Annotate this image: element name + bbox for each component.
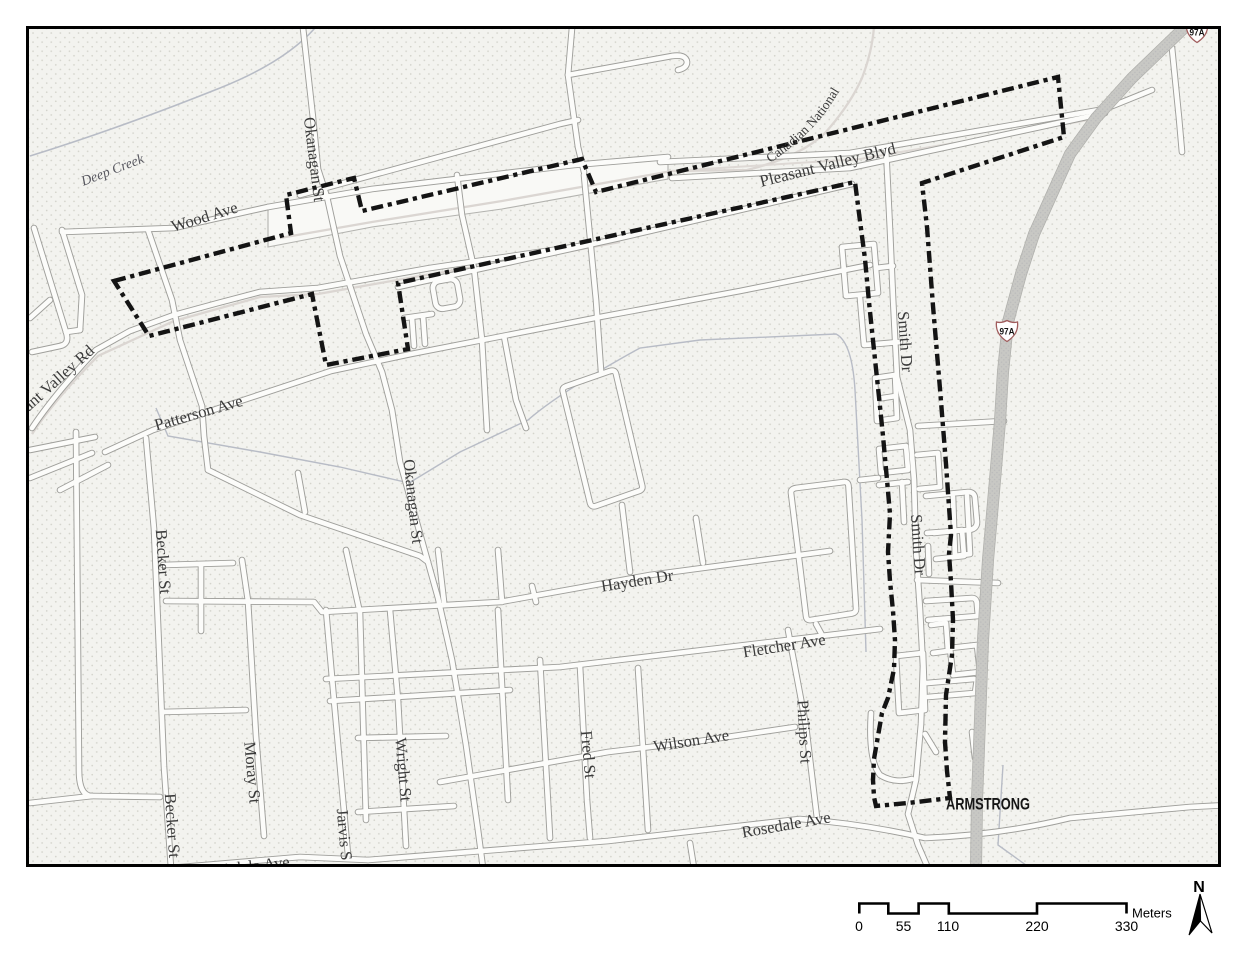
svg-text:97A: 97A — [1000, 326, 1015, 337]
svg-text:ARMSTRONG: ARMSTRONG — [946, 795, 1030, 814]
svg-text:0: 0 — [855, 918, 863, 934]
svg-text:110: 110 — [937, 918, 960, 934]
svg-text:55: 55 — [896, 918, 912, 934]
svg-text:Philips St: Philips St — [793, 699, 815, 764]
svg-text:220: 220 — [1025, 918, 1049, 934]
svg-text:Meters: Meters — [1132, 906, 1172, 921]
svg-text:N: N — [1193, 879, 1205, 896]
svg-text:97A: 97A — [1190, 27, 1205, 38]
